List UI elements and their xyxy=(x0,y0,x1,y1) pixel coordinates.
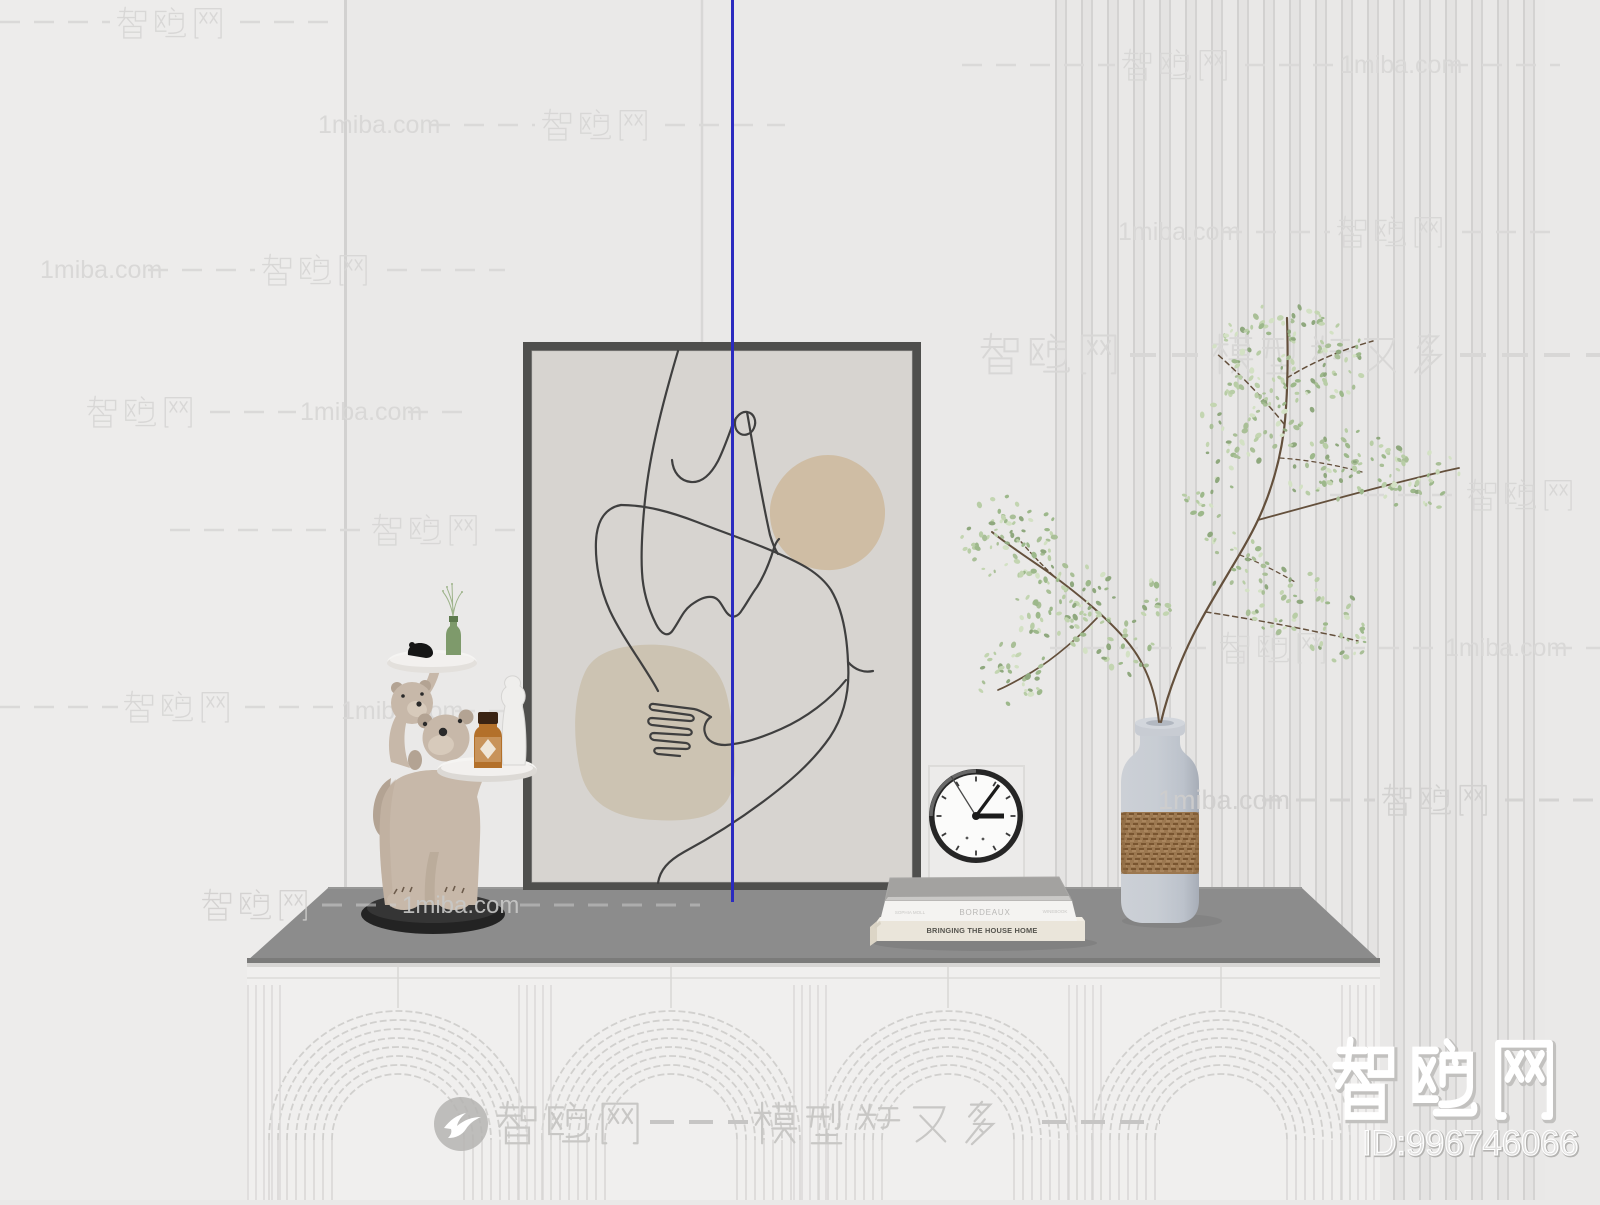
svg-text:1miba.com: 1miba.com xyxy=(318,111,440,139)
svg-text:BORDEAUX: BORDEAUX xyxy=(959,908,1010,917)
svg-text:1miba.com: 1miba.com xyxy=(1118,218,1240,246)
svg-text:1miba.com: 1miba.com xyxy=(402,892,519,919)
svg-text:1miba.com: 1miba.com xyxy=(1340,51,1462,79)
svg-text:1miba.com: 1miba.com xyxy=(40,256,162,284)
svg-text:1miba.com: 1miba.com xyxy=(300,398,422,426)
svg-text:WINEBOOK: WINEBOOK xyxy=(1043,909,1068,914)
svg-text:ID:996746066: ID:996746066 xyxy=(1362,1124,1578,1163)
svg-text:BRINGING THE HOUSE HOME: BRINGING THE HOUSE HOME xyxy=(927,926,1038,935)
svg-text:1miba.com: 1miba.com xyxy=(1445,634,1567,662)
svg-text:SOPHIA MOLL: SOPHIA MOLL xyxy=(895,910,926,915)
